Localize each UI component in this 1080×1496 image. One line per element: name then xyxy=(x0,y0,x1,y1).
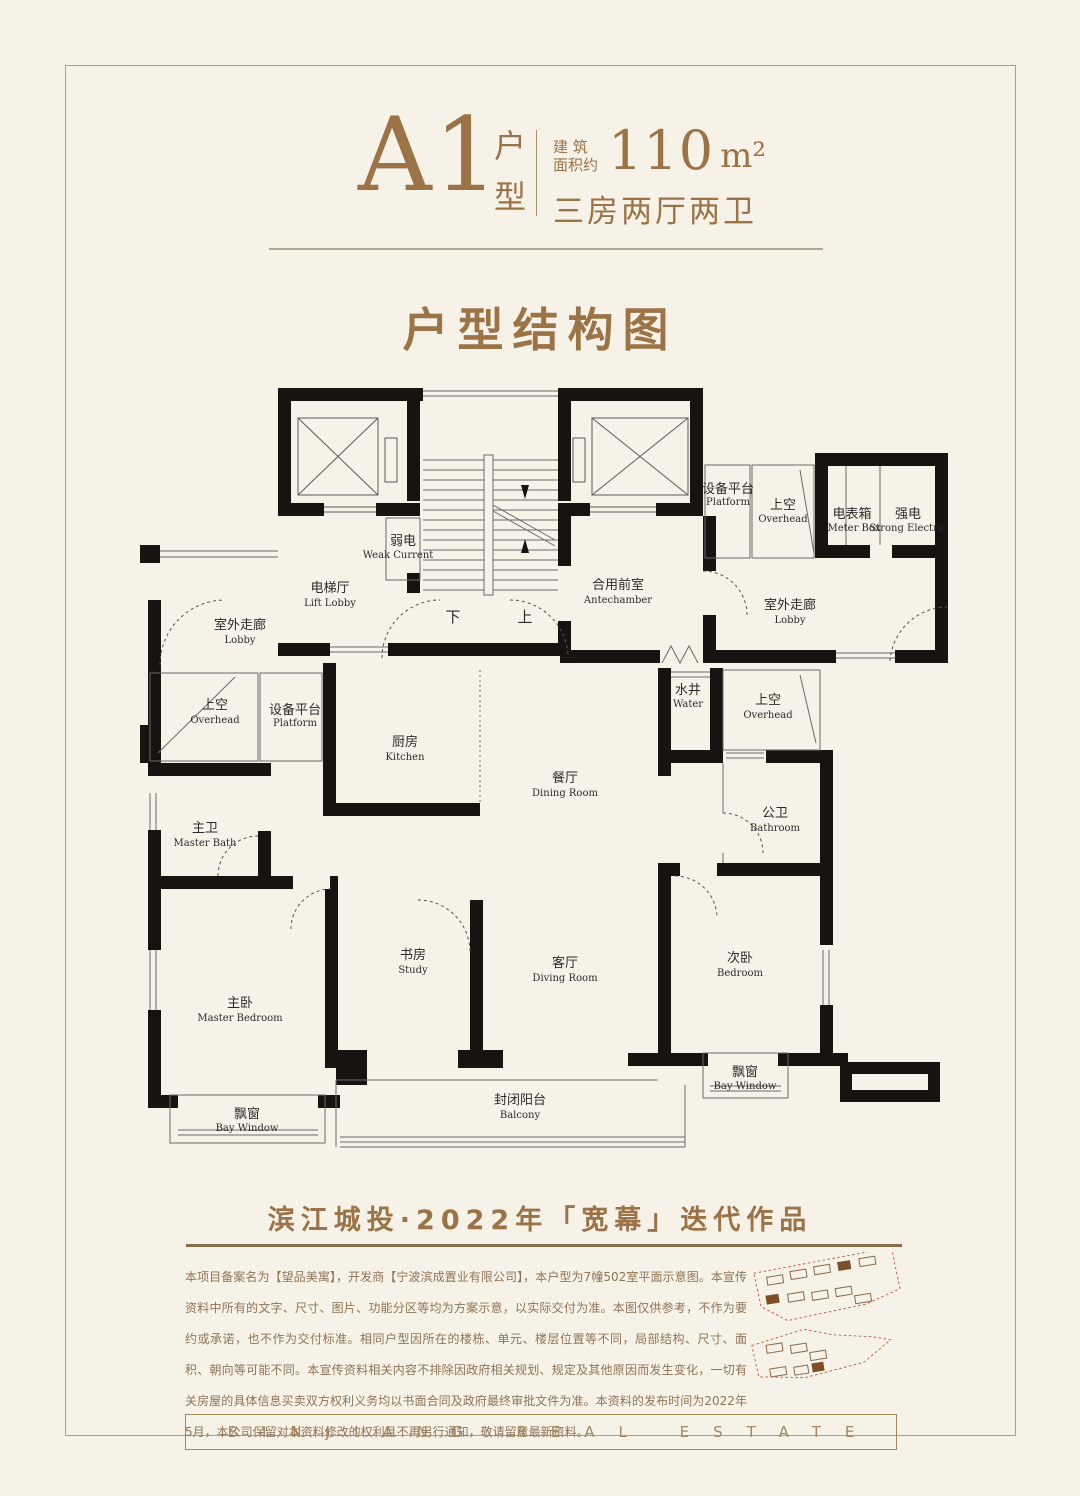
room-bay-window-left-en: Bay Window xyxy=(216,1123,279,1134)
room-lobby-left-zh: 室外走廊 xyxy=(214,617,266,633)
header-underline xyxy=(269,248,823,250)
room-study-en: Study xyxy=(398,965,428,976)
room-master-bedroom-en: Master Bedroom xyxy=(197,1013,283,1024)
room-lift-lobby-en: Lift Lobby xyxy=(304,598,356,609)
room-overhead-right-zh: 上空 xyxy=(755,693,781,708)
room-strong-electric-zh: 强电 xyxy=(895,507,921,522)
room-lobby-right-en: Lobby xyxy=(774,615,805,626)
elevator-right xyxy=(573,418,688,512)
room-living-zh: 客厅 xyxy=(552,955,578,971)
room-lobby-left-en: Lobby xyxy=(224,635,255,646)
room-weak-current-en: Weak Current xyxy=(363,550,434,561)
floor-plan-svg: 弱电 Weak Current 电梯厅 Lift Lobby 室外走廊 Lobb… xyxy=(140,385,964,1175)
area-prefix: 建 筑 面积约 xyxy=(553,138,598,174)
room-master-bedroom-zh: 主卧 xyxy=(227,996,253,1011)
room-strong-electric-en: Strong Electric xyxy=(869,523,947,534)
room-kitchen-en: Kitchen xyxy=(385,752,425,763)
header-area-block: 建 筑 面积约 110 m² 三房两厅两卫 xyxy=(553,128,766,231)
header-divider xyxy=(536,130,537,216)
room-bay-window-left-zh: 飘窗 xyxy=(234,1106,260,1122)
room-overhead-left-zh: 上空 xyxy=(202,698,228,713)
area-unit: m² xyxy=(720,138,766,174)
room-weak-current-zh: 弱电 xyxy=(390,534,416,549)
room-bay-window-right-en: Bay Window xyxy=(714,1081,777,1092)
area-prefix-line2: 面积约 xyxy=(553,156,598,174)
site-map-svg xyxy=(743,1252,911,1400)
floor-plan: 弱电 Weak Current 电梯厅 Lift Lobby 室外走廊 Lobb… xyxy=(140,385,964,1175)
room-platform-left-zh: 设备平台 xyxy=(269,702,321,718)
room-overhead-right-en: Overhead xyxy=(743,710,793,721)
room-platform-top-zh: 设备平台 xyxy=(702,481,754,497)
area-prefix-line1: 建 筑 xyxy=(553,138,598,156)
room-dining-zh: 餐厅 xyxy=(552,770,578,786)
room-balcony-en: Balcony xyxy=(500,1110,541,1121)
brand-tagline: 滨江城投·2022年「宽幕」迭代作品 xyxy=(0,1198,1080,1237)
floorplan-poster: { "page": {"background": "#f6f2e8", "acc… xyxy=(0,0,1080,1496)
room-overhead-top-zh: 上空 xyxy=(770,498,796,513)
stair-down-label: 下 xyxy=(445,608,460,626)
site-map-block-north xyxy=(753,1252,902,1325)
site-map-block-south xyxy=(751,1316,895,1385)
room-study-zh: 书房 xyxy=(400,947,426,963)
elevator-left xyxy=(298,418,397,512)
room-platform-top-en: Platform xyxy=(706,497,750,508)
room-kitchen-zh: 厨房 xyxy=(392,734,418,750)
room-water-en: Water xyxy=(673,699,703,710)
room-lobby-right-zh: 室外走廊 xyxy=(764,597,816,613)
area-value: 110 xyxy=(608,128,714,174)
room-layout-summary: 三房两厅两卫 xyxy=(553,186,766,231)
room-water-zh: 水井 xyxy=(675,683,701,698)
room-overhead-left-en: Overhead xyxy=(190,715,240,726)
unit-type-char1: 户 xyxy=(492,130,528,162)
room-platform-left-en: Platform xyxy=(273,718,317,729)
room-master-bath-en: Master Bath xyxy=(174,838,238,849)
room-antechamber-zh: 合用前室 xyxy=(592,577,644,593)
walls xyxy=(140,388,948,1108)
room-living-en: Diving Room xyxy=(532,973,598,984)
room-bedroom-zh: 次卧 xyxy=(727,950,753,966)
room-bedroom-en: Bedroom xyxy=(717,968,763,979)
room-meter-box-zh: 电表箱 xyxy=(832,506,871,522)
footer-brand-text: BINJIANG REAL ESTATE xyxy=(204,1423,879,1441)
footer-brand-box: BINJIANG REAL ESTATE xyxy=(185,1414,897,1450)
room-bathroom-zh: 公卫 xyxy=(762,806,788,821)
room-antechamber-en: Antechamber xyxy=(583,595,652,606)
room-overhead-top-en: Overhead xyxy=(758,514,808,525)
room-bay-window-right-zh: 飘窗 xyxy=(732,1064,758,1080)
room-balcony-zh: 封闭阳台 xyxy=(494,1093,546,1108)
room-bathroom-en: Bathroom xyxy=(750,823,801,834)
header: A1 户 型 建 筑 面积约 110 m² 三房两厅两卫 xyxy=(0,100,1080,230)
page-title: 户型结构图 xyxy=(0,294,1080,360)
stair-arrows xyxy=(521,485,529,553)
light-well xyxy=(846,1068,934,1096)
tagline-underline xyxy=(186,1244,902,1247)
room-master-bath-zh: 主卫 xyxy=(192,821,218,836)
room-lift-lobby-zh: 电梯厅 xyxy=(310,581,349,596)
unit-code: A1 xyxy=(358,98,488,213)
unit-type-vertical: 户 型 xyxy=(492,130,528,213)
room-dining-en: Dining Room xyxy=(532,788,598,799)
stairs xyxy=(423,391,558,595)
site-map-sketch xyxy=(743,1252,911,1400)
stair-up-label: 上 xyxy=(517,608,532,626)
unit-type-char2: 型 xyxy=(492,181,528,213)
